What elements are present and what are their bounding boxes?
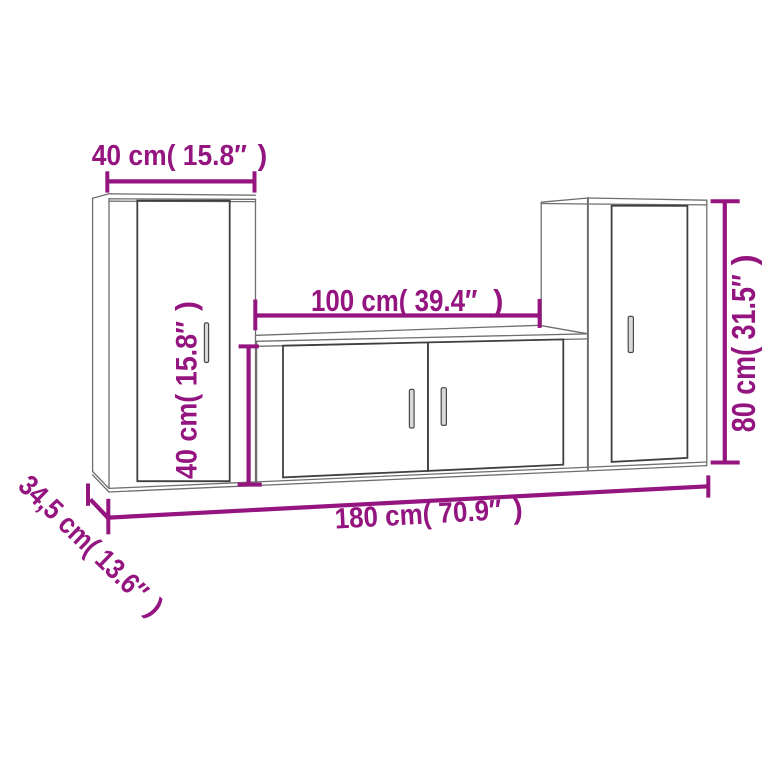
svg-text:40 cm( 15.8″: 40 cm( 15.8″	[171, 321, 204, 479]
svg-text:80 cm( 31.5″: 80 cm( 31.5″	[725, 274, 762, 432]
svg-text:): )	[725, 254, 762, 265]
svg-text:100 cm( 39.4″: 100 cm( 39.4″	[311, 283, 478, 318]
svg-text:): )	[258, 140, 268, 172]
svg-text:): )	[493, 283, 503, 318]
svg-text:): )	[512, 493, 523, 525]
svg-text:40 cm( 15.8″: 40 cm( 15.8″	[92, 140, 247, 172]
svg-text:): )	[171, 301, 204, 311]
